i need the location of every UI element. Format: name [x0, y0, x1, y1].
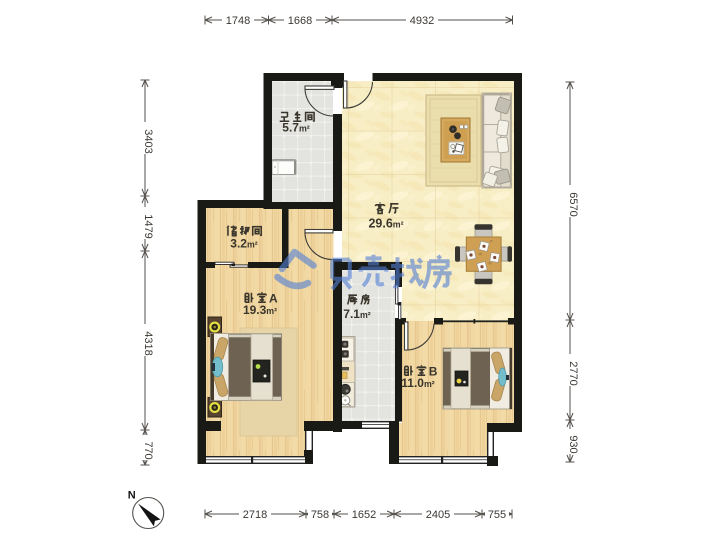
svg-text:19.3m²: 19.3m²	[243, 303, 277, 317]
svg-text:29.6m²: 29.6m²	[368, 217, 403, 231]
svg-text:2770: 2770	[567, 361, 579, 385]
svg-text:11.0m²: 11.0m²	[401, 376, 435, 390]
svg-text:1668: 1668	[288, 15, 312, 27]
svg-text:1748: 1748	[226, 15, 250, 27]
svg-text:7.1m²: 7.1m²	[343, 307, 371, 321]
svg-text:3.2m²: 3.2m²	[230, 237, 258, 251]
svg-text:4318: 4318	[142, 331, 154, 355]
svg-text:5.7m²: 5.7m²	[282, 121, 310, 135]
svg-text:B: B	[429, 365, 438, 379]
svg-text:930: 930	[567, 435, 579, 453]
svg-text:2405: 2405	[426, 509, 450, 521]
svg-text:758: 758	[311, 509, 329, 521]
svg-text:A: A	[269, 292, 278, 306]
svg-text:770: 770	[142, 441, 154, 459]
svg-text:N: N	[128, 490, 136, 502]
svg-text:1479: 1479	[142, 214, 154, 238]
svg-text:4932: 4932	[410, 15, 434, 27]
svg-text:6570: 6570	[567, 192, 579, 216]
svg-text:3403: 3403	[142, 129, 154, 153]
svg-text:2718: 2718	[243, 509, 267, 521]
svg-text:1652: 1652	[352, 509, 376, 521]
svg-text:755: 755	[488, 509, 506, 521]
